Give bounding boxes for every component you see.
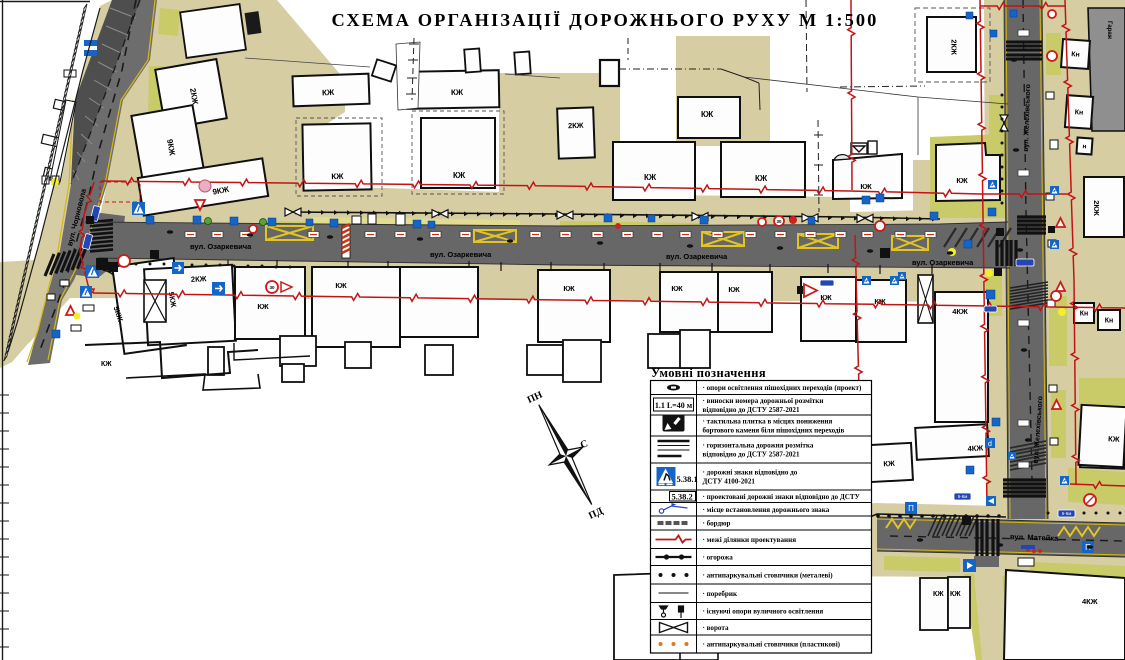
svg-text:вул. Матейка: вул. Матейка [1010,532,1059,543]
svg-text:· проектовані дорожні знаки ві: · проектовані дорожні знаки відповідно д… [703,493,861,501]
svg-text:· дорожні знаки відповідно до: · дорожні знаки відповідно до [703,469,798,477]
svg-text:2КЖ: 2КЖ [191,274,207,284]
svg-text:d: d [988,441,992,448]
svg-text:· огорожа: · огорожа [703,554,734,562]
svg-text:КЖ: КЖ [563,284,575,293]
svg-text:КЖ: КЖ [335,281,347,290]
svg-text:Кн: Кн [1080,310,1089,317]
svg-text:відповідно до ДСТУ 2587-2021: відповідно до ДСТУ 2587-2021 [703,451,800,459]
svg-text:2КЖ: 2КЖ [568,121,584,131]
svg-text:30: 30 [269,285,275,290]
svg-text:вул. Озаркевича: вул. Озаркевича [666,252,728,261]
svg-text:КЖ: КЖ [331,172,344,181]
svg-text:КЖ: КЖ [950,591,961,598]
svg-text:П: П [908,504,914,513]
svg-text:1.1 L=40 м: 1.1 L=40 м [655,401,693,410]
svg-text:КЖ: КЖ [322,88,335,97]
svg-text:Кн: Кн [1071,51,1080,59]
svg-text:відповідно до ДСТУ 2587-2021: відповідно до ДСТУ 2587-2021 [703,406,800,414]
svg-text:бортового каменя біля пішохідн: бортового каменя біля пішохідних переход… [703,427,845,435]
svg-text:Гараж: Гараж [1106,21,1112,40]
svg-text:КЖ: КЖ [883,459,895,469]
svg-text:· антипаркувальні стовпчики (п: · антипаркувальні стовпчики (пластикові) [703,641,841,649]
svg-text:КЖ: КЖ [1108,434,1120,444]
svg-text:вул. Озаркевича: вул. Озаркевича [430,250,492,259]
svg-text:2КЖ: 2КЖ [1092,200,1101,216]
svg-text:· виноски номера дорожньої роз: · виноски номера дорожньої розмітки [703,397,824,405]
svg-text:КЖ: КЖ [933,591,944,598]
svg-text:Умовні позначення: Умовні позначення [651,366,766,380]
svg-text:Кн: Кн [1105,317,1114,324]
svg-text:5.38.1: 5.38.1 [677,474,698,484]
svg-text:· горизонтальна дорожня розміт: · горизонтальна дорожня розмітка [703,442,814,450]
svg-text:4КЖ: 4КЖ [952,307,968,316]
svg-text:вул. Озаркевича: вул. Озаркевича [912,258,974,267]
svg-text:· антипаркувальні стовпчики (м: · антипаркувальні стовпчики (металеві) [703,571,834,579]
svg-text:4КЖ: 4КЖ [967,443,983,453]
svg-text:4КЖ: 4КЖ [1082,597,1098,606]
svg-text:· ворота: · ворота [703,624,729,632]
svg-text:КЖ: КЖ [860,182,872,191]
svg-text:· бордюр: · бордюр [703,520,731,528]
svg-text:КЖ: КЖ [755,174,768,183]
svg-text:30: 30 [776,219,782,224]
svg-text:· тактильна плитка в місцях по: · тактильна плитка в місцях пониження [703,418,833,426]
svg-text:· межі ділянки проектування: · межі ділянки проектування [703,536,797,544]
svg-text:КЖ: КЖ [453,171,466,180]
svg-text:КЖ: КЖ [701,110,714,119]
svg-text:· місце встановлення дорожньог: · місце встановлення дорожнього знака [703,506,830,514]
svg-text:6-6м: 6-6м [958,494,968,499]
svg-text:КЖ: КЖ [451,88,464,97]
svg-text:· існуючі опори вуличного осві: · існуючі опори вуличного освітлення [703,608,824,616]
svg-text:2КЖ: 2КЖ [950,39,959,55]
svg-text:КЖ: КЖ [671,284,683,293]
svg-text:ДСТУ 4100-2021: ДСТУ 4100-2021 [703,478,756,486]
svg-text:СХЕМА ОРГАНІЗАЦІЇ ДОРОЖНЬОГО Р: СХЕМА ОРГАНІЗАЦІЇ ДОРОЖНЬОГО РУХУ М 1:50… [332,10,879,30]
svg-text:5.38.2: 5.38.2 [672,492,693,502]
svg-text:КЖ: КЖ [257,302,269,311]
svg-text:6-6м: 6-6м [1062,511,1072,516]
svg-text:вул. Озаркевича: вул. Озаркевича [190,242,252,251]
svg-text:· поребрик: · поребрик [703,590,738,598]
svg-text:Кн: Кн [1074,109,1083,117]
svg-text:КЖ: КЖ [728,285,740,294]
svg-text:н: н [1082,143,1086,150]
svg-text:КЖ: КЖ [644,173,657,182]
svg-text:КЖ: КЖ [101,361,112,368]
svg-text:· опори освітлення пішохідних: · опори освітлення пішохідних переходів … [703,384,862,392]
svg-text:КЖ: КЖ [956,176,968,185]
